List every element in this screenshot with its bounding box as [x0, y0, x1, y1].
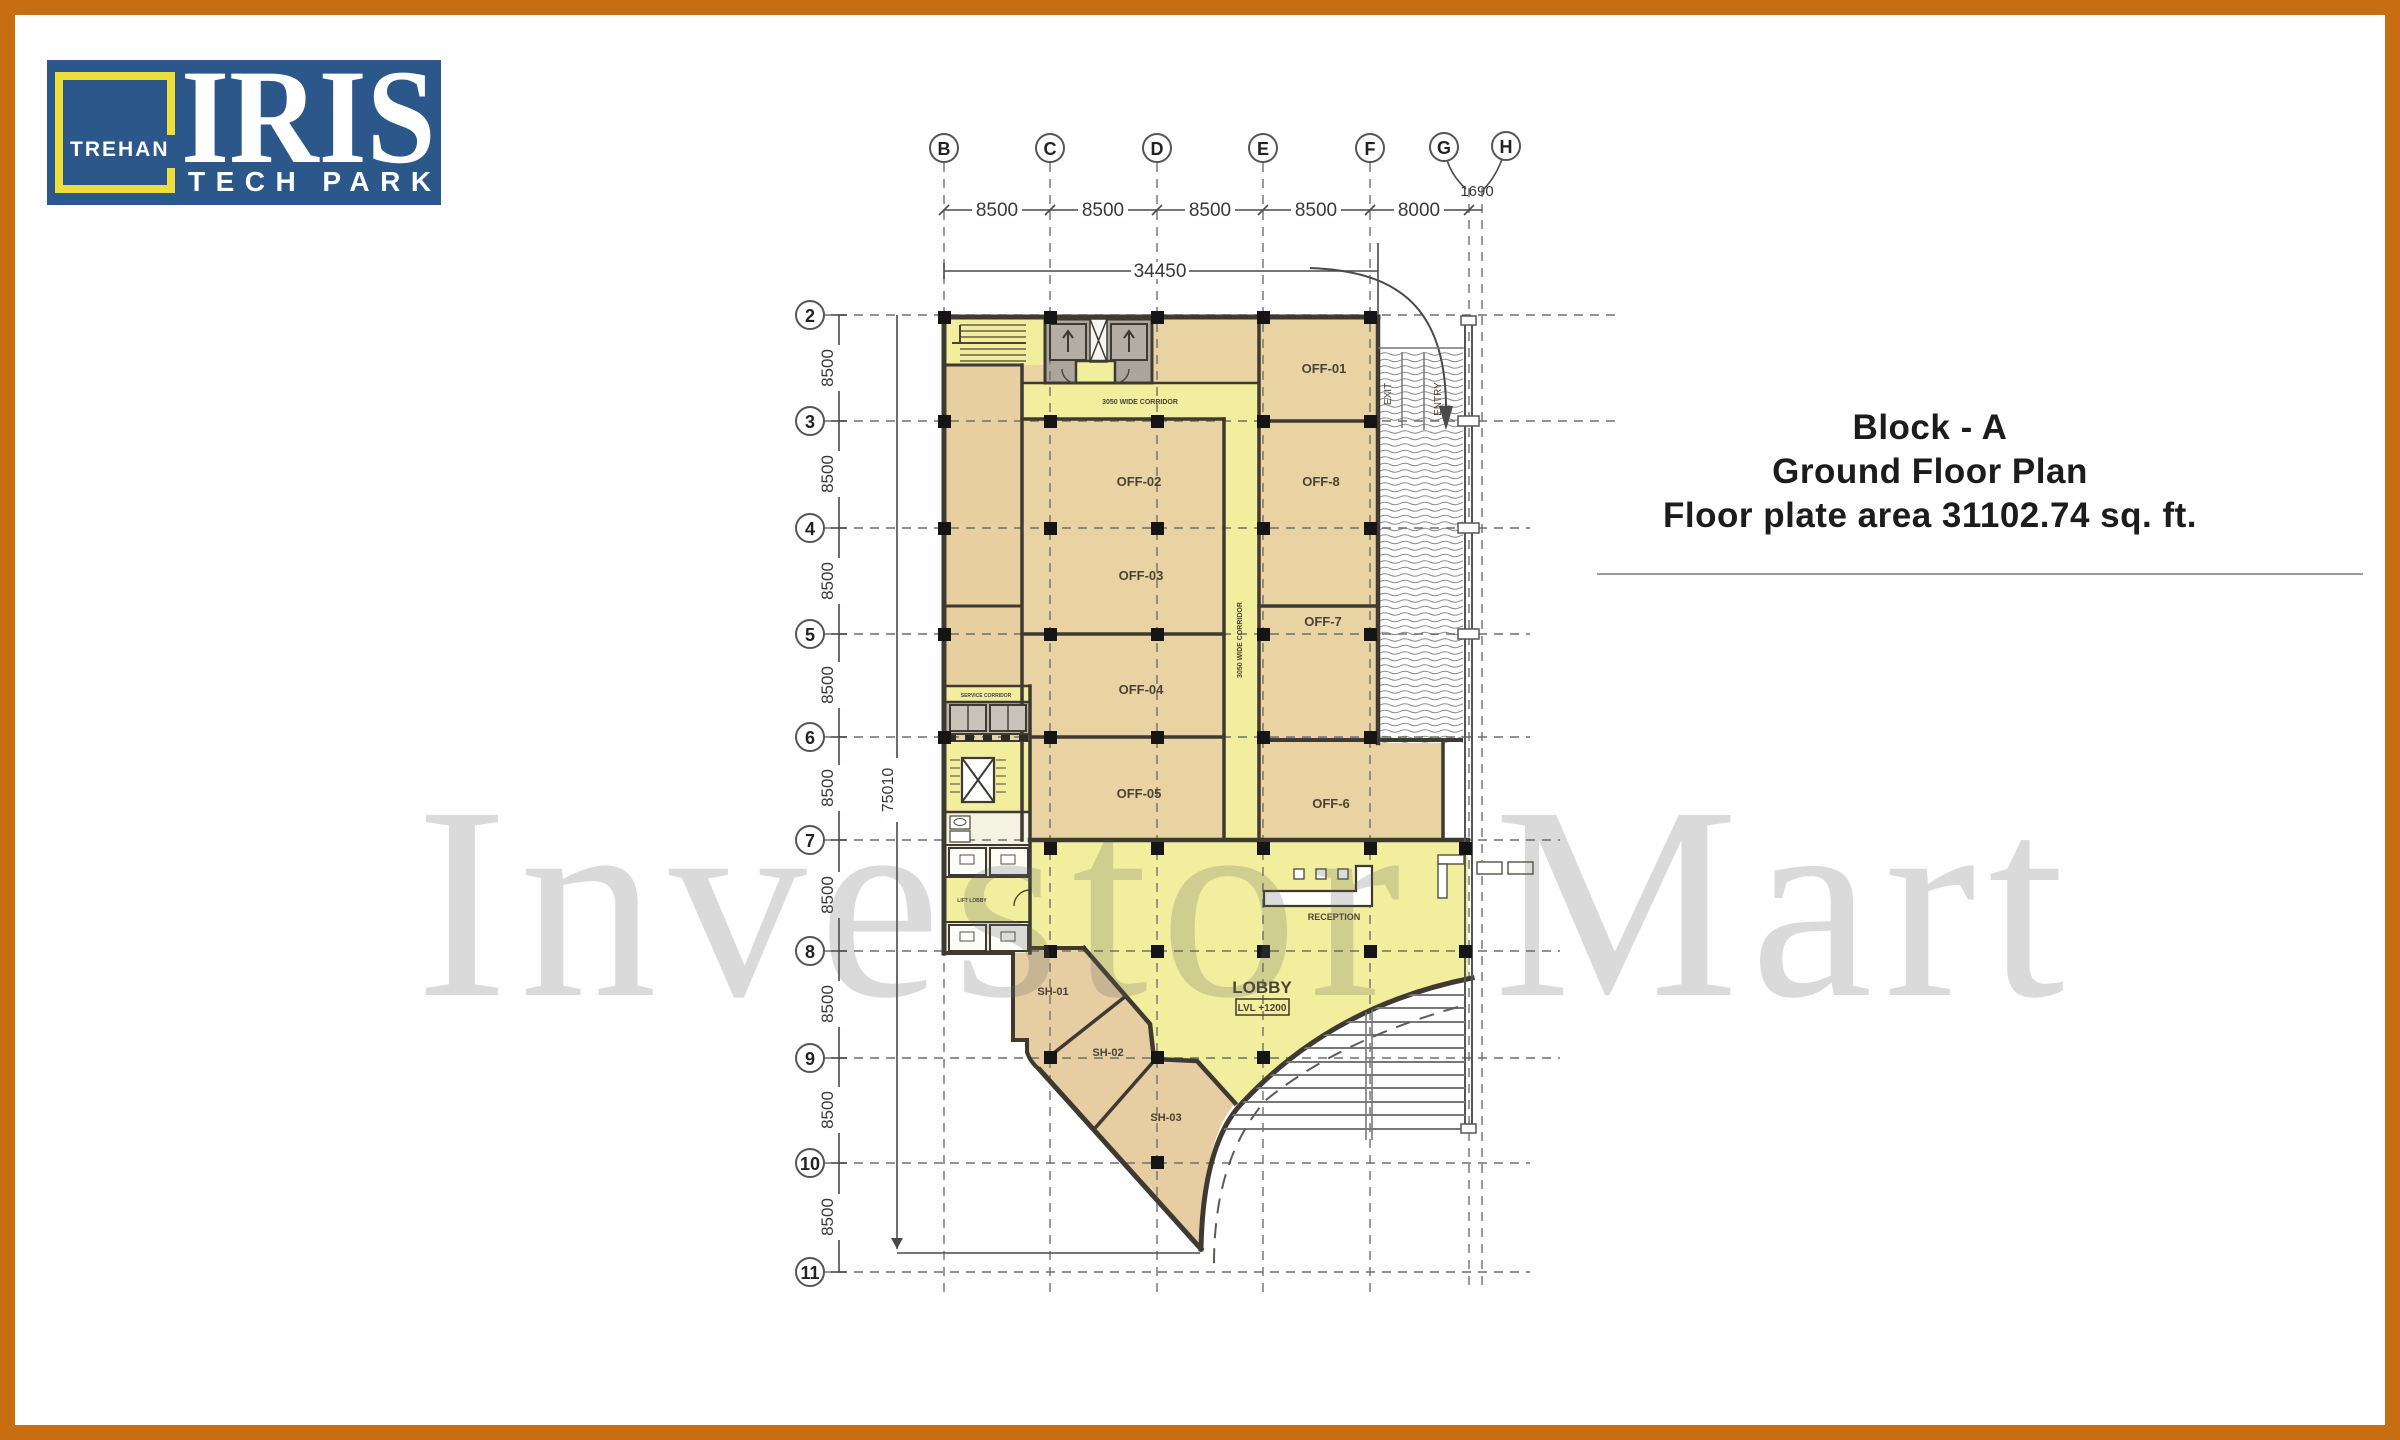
svg-text:8500: 8500: [818, 666, 837, 704]
svg-text:8500: 8500: [1082, 200, 1124, 221]
svg-text:11: 11: [800, 1263, 819, 1283]
svg-text:ENTRY: ENTRY: [1433, 382, 1444, 416]
svg-text:8500: 8500: [818, 455, 837, 493]
svg-text:OFF-01: OFF-01: [1302, 361, 1347, 376]
svg-text:EXIT: EXIT: [1383, 383, 1394, 405]
svg-text:8000: 8000: [1398, 200, 1440, 221]
svg-text:3050 WIDE CORRIDOR: 3050 WIDE CORRIDOR: [1102, 399, 1178, 406]
svg-text:10: 10: [800, 1154, 820, 1174]
svg-text:OFF-8: OFF-8: [1302, 474, 1340, 489]
svg-text:H: H: [1500, 137, 1513, 157]
svg-text:8500: 8500: [976, 200, 1018, 221]
svg-text:1690: 1690: [1460, 183, 1493, 200]
svg-text:4: 4: [805, 519, 815, 539]
svg-text:E: E: [1257, 139, 1269, 159]
svg-text:8500: 8500: [1189, 200, 1231, 221]
svg-text:SH-03: SH-03: [1150, 1112, 1181, 1124]
svg-text:5: 5: [805, 625, 815, 645]
svg-text:2: 2: [805, 306, 815, 326]
svg-text:OFF-04: OFF-04: [1119, 682, 1165, 697]
svg-text:OFF-03: OFF-03: [1119, 568, 1164, 583]
svg-text:8500: 8500: [818, 562, 837, 600]
svg-text:8500: 8500: [1295, 200, 1337, 221]
svg-text:F: F: [1365, 139, 1376, 159]
svg-text:3: 3: [805, 412, 815, 432]
svg-text:C: C: [1044, 139, 1057, 159]
svg-text:D: D: [1151, 139, 1164, 159]
svg-text:SERVICE CORRIDOR: SERVICE CORRIDOR: [961, 693, 1012, 699]
svg-text:OFF-02: OFF-02: [1117, 474, 1162, 489]
svg-text:34450: 34450: [1134, 261, 1187, 282]
svg-text:3050 WIDE CORRIDOR: 3050 WIDE CORRIDOR: [1237, 602, 1244, 678]
svg-text:8500: 8500: [818, 349, 837, 387]
svg-text:B: B: [938, 139, 951, 159]
svg-text:OFF-7: OFF-7: [1304, 614, 1342, 629]
svg-text:8500: 8500: [818, 1091, 837, 1129]
svg-text:8500: 8500: [818, 1198, 837, 1236]
svg-text:G: G: [1437, 138, 1451, 158]
